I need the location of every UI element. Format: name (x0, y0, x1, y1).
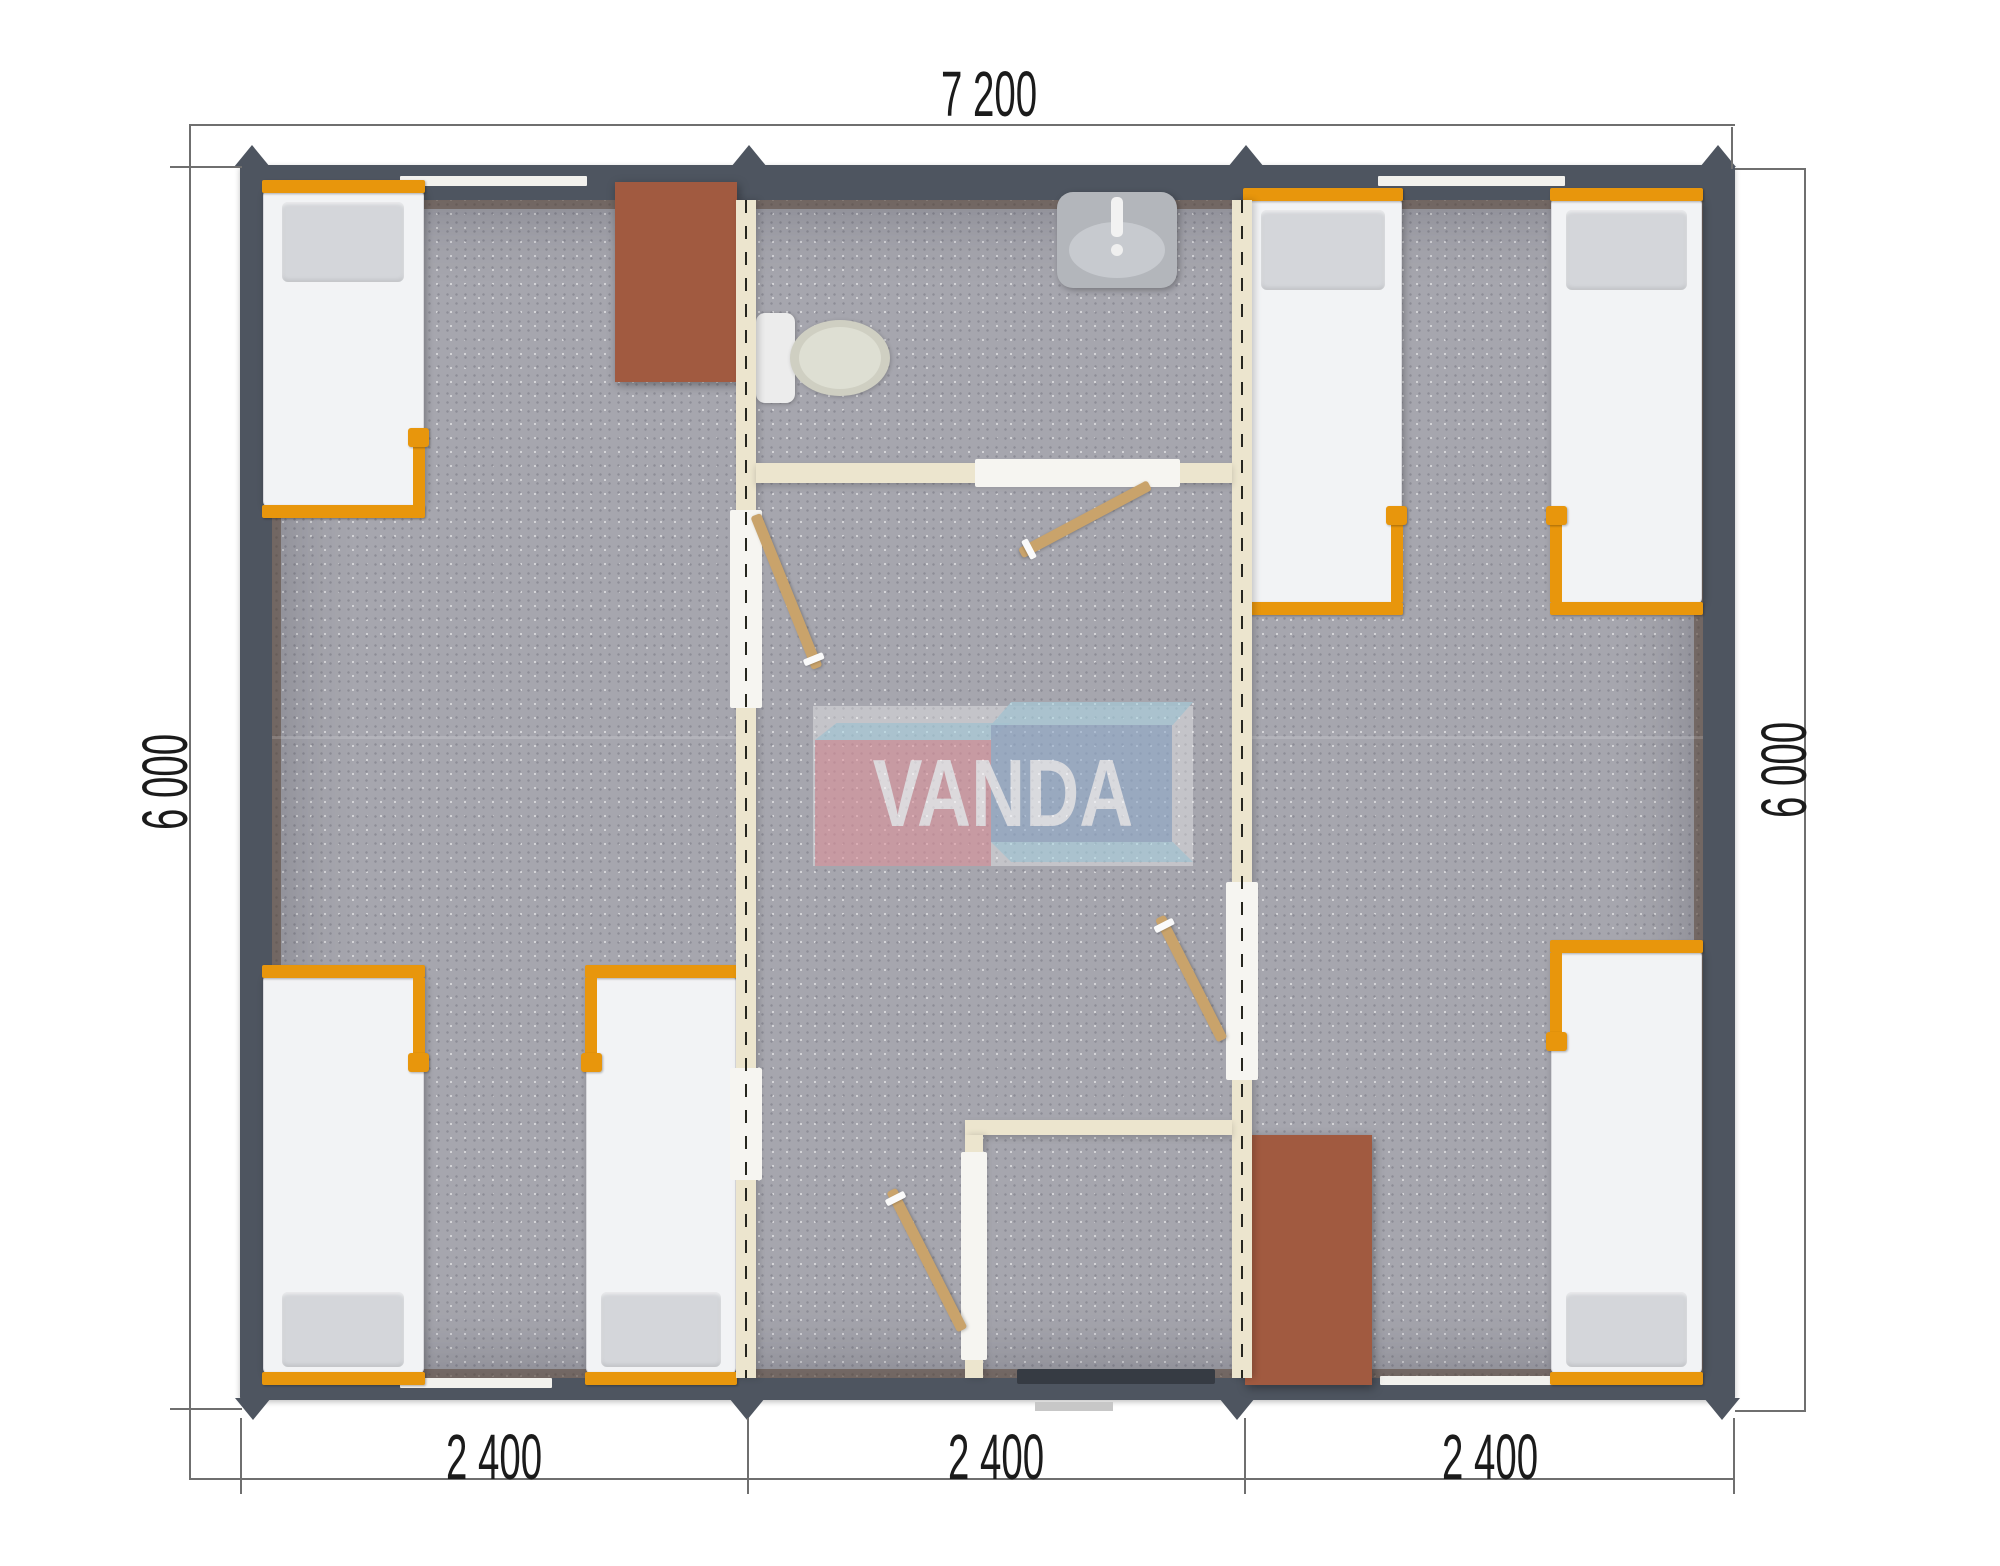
floor-seam (272, 736, 736, 739)
extension-line (1733, 1418, 1735, 1494)
wall-centerline (1241, 200, 1243, 1378)
extension-line (1244, 1418, 1246, 1494)
dimension-bottom-label: 2 400 (1430, 1425, 1550, 1489)
module-wall-left (736, 200, 756, 1378)
extension-line (1735, 1410, 1806, 1412)
bed-pillow (1261, 210, 1385, 290)
dimension-top-label: 7 200 (929, 62, 1049, 126)
door-handle-icon (1021, 538, 1037, 560)
bed-frame-corner (1546, 506, 1567, 525)
entrance-door (1017, 1369, 1215, 1384)
bed-frame-corner (581, 1053, 602, 1072)
bed-pillow (1566, 1292, 1687, 1367)
shower-wall-left (965, 1135, 983, 1378)
bed-frame-bar (1550, 940, 1703, 953)
bed-frame-post (413, 978, 425, 1058)
dimension-left-label: 6 000 (135, 722, 195, 842)
faucet-knob-icon (1111, 244, 1123, 256)
dimension-bottom-label: 2 400 (434, 1425, 554, 1489)
bed (585, 965, 737, 1385)
bed-frame-corner (1386, 506, 1407, 525)
window (1378, 176, 1565, 186)
bed-frame-bar (1243, 188, 1403, 201)
logo-box-bevel (991, 702, 1193, 725)
roof-joint-icon (1704, 1398, 1740, 1420)
bed-frame-bar (585, 965, 737, 978)
roof-joint-icon (731, 145, 767, 167)
roof-joint-icon (729, 1398, 765, 1420)
floor-seam (1252, 736, 1703, 739)
door-handle-icon (1153, 918, 1175, 934)
bed-frame-bar (1550, 188, 1703, 201)
bed-pillow (282, 1292, 404, 1367)
bed-frame-corner (408, 428, 429, 447)
roof-joint-icon (1228, 145, 1264, 167)
cabinet (1245, 1135, 1372, 1385)
window (1380, 1376, 1565, 1385)
sink-icon (1057, 192, 1177, 288)
window (400, 176, 587, 186)
roof-joint-icon (1219, 1398, 1255, 1420)
bathroom-wall (756, 463, 1232, 483)
bed-frame-bar (262, 505, 425, 518)
vanda-logo: VANDA (813, 698, 1193, 868)
bed-frame-corner (408, 1053, 429, 1072)
dimension-bottom-label: 2 400 (936, 1425, 1056, 1489)
faucet-icon (1111, 197, 1123, 237)
bed-frame-bar (262, 180, 425, 193)
floor-plan-canvas: VANDA 7 200 6 000 6 000 2 400 2 400 2 40… (0, 0, 2000, 1566)
desk (615, 182, 737, 382)
bed (262, 180, 425, 518)
toilet-seat-icon (799, 327, 881, 389)
extension-line (747, 1418, 749, 1494)
bed (1243, 188, 1403, 615)
door-handle-icon (803, 652, 825, 666)
extension-line (170, 166, 242, 168)
dimension-right-label: 6 000 (1754, 710, 1814, 830)
logo-box-bevel (815, 723, 1011, 740)
entrance-threshold (1035, 1402, 1113, 1411)
bed-frame-bar (1550, 602, 1703, 615)
bed-frame-post (1550, 953, 1562, 1038)
extension-line (170, 1408, 242, 1410)
bed-frame-post (413, 440, 425, 507)
bed (1550, 188, 1703, 615)
door-opening (961, 1152, 987, 1360)
extension-line (1735, 168, 1806, 170)
extension-line (1731, 127, 1733, 169)
bed-frame-post (1391, 518, 1403, 602)
roof-joint-icon (234, 145, 270, 167)
bed-frame-bar (585, 1372, 737, 1385)
bed-frame-bar (262, 1372, 425, 1385)
bed-frame-post (585, 978, 597, 1058)
extension-line (240, 1418, 242, 1494)
bed-frame-corner (1546, 1032, 1567, 1051)
shower-wall-top (965, 1120, 1232, 1135)
door-opening (975, 459, 1180, 487)
module-wall-right (1232, 200, 1252, 1378)
bed-frame-bar (262, 965, 425, 978)
bed-pillow (601, 1292, 721, 1367)
wall-centerline (745, 200, 747, 1378)
bed-pillow (282, 202, 404, 282)
bed-frame-post (1550, 518, 1562, 602)
door-handle-icon (885, 1191, 907, 1207)
bed (262, 965, 425, 1385)
bed-frame-bar (1243, 602, 1403, 615)
toilet-icon (790, 320, 890, 396)
logo-text: VANDA (855, 746, 1151, 842)
bed (1550, 940, 1703, 1385)
bed-pillow (1566, 210, 1687, 290)
bed-frame-bar (1550, 1372, 1703, 1385)
